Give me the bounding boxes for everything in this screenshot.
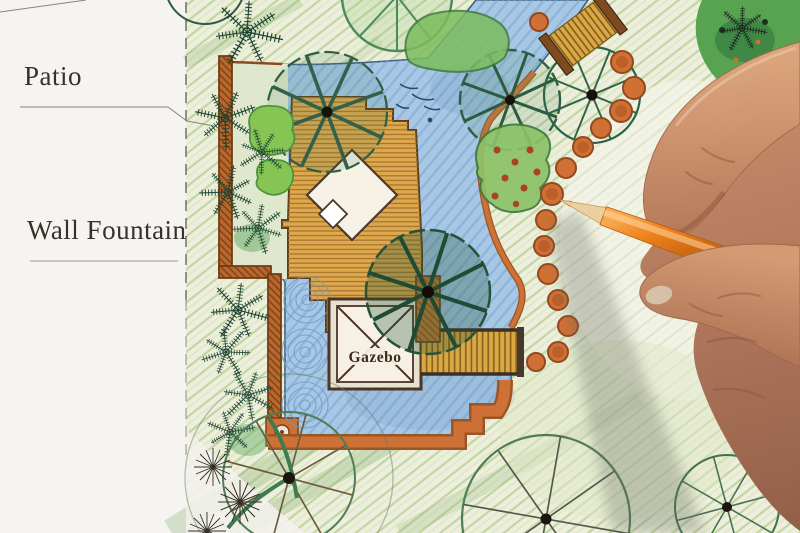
stream-shrub: [405, 11, 508, 72]
gazebo-label: Gazebo: [349, 349, 402, 366]
wall-fountain-label: Wall Fountain: [27, 215, 187, 245]
garden-plan-photo: Patio Wall Fountain: [0, 0, 800, 533]
berry-shrub: [476, 125, 550, 212]
patio-label: Patio: [24, 61, 82, 91]
garden-plan-drawing: Patio Wall Fountain: [0, 0, 800, 533]
